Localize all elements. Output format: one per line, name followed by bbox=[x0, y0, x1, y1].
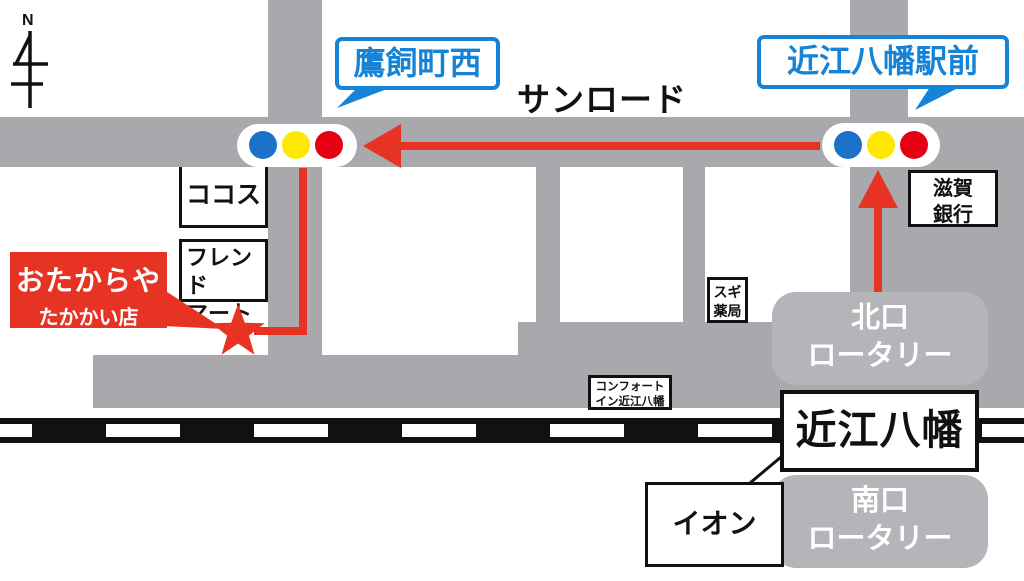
building-sugi-pharmacy: スギ 薬局 bbox=[707, 277, 748, 323]
north-exit-rotary: 北口 ロータリー bbox=[772, 292, 988, 385]
comfort-inn-line2: イン近江八幡 bbox=[591, 395, 669, 410]
road-side-street-1 bbox=[536, 167, 560, 327]
station-box: 近江八幡 bbox=[780, 390, 979, 472]
shiga-bank-line1: 滋賀 bbox=[911, 176, 995, 202]
road-side-street-2 bbox=[683, 167, 705, 325]
sugi-line2: 薬局 bbox=[710, 302, 745, 321]
sugi-line1: スギ bbox=[710, 283, 745, 302]
aeon-label: イオン bbox=[672, 508, 756, 539]
signal-west-label: 鷹飼町西 bbox=[353, 45, 481, 81]
building-friend-mart: フレンド マート bbox=[179, 239, 268, 302]
friend-mart-line1: フレンド bbox=[186, 244, 265, 300]
compass-n-label: N bbox=[22, 12, 34, 29]
yellow-light-icon bbox=[867, 131, 895, 159]
bubble-east-pointer bbox=[915, 87, 960, 110]
rotary-south-line2: ロータリー bbox=[772, 521, 988, 559]
comfort-inn-line1: コンフォート bbox=[591, 380, 669, 395]
blue-light-icon bbox=[249, 131, 277, 159]
rotary-north-line2: ロータリー bbox=[772, 338, 988, 376]
south-exit-rotary: 南口 ロータリー bbox=[772, 475, 988, 568]
traffic-light-east bbox=[822, 123, 940, 167]
red-light-icon bbox=[900, 131, 928, 159]
rotary-south-line1: 南口 bbox=[772, 483, 988, 521]
friend-mart-line2: マート bbox=[186, 300, 265, 328]
rotary-north-line1: 北口 bbox=[772, 300, 988, 338]
building-comfort-inn: コンフォート イン近江八幡 bbox=[588, 375, 672, 410]
store-name: おたからや bbox=[10, 259, 167, 299]
shiga-bank-line2: 銀行 bbox=[911, 202, 995, 228]
station-name: 近江八幡 bbox=[796, 407, 964, 453]
yellow-light-icon bbox=[282, 131, 310, 159]
street-name-label: サンロード bbox=[516, 73, 688, 121]
road-west-vertical bbox=[268, 0, 322, 357]
signal-bubble-west: 鷹飼町西 bbox=[335, 37, 500, 90]
building-cocos: ココス bbox=[179, 167, 268, 228]
building-shiga-bank: 滋賀 銀行 bbox=[908, 170, 998, 227]
store-callout: おたからや たかかい店 bbox=[10, 252, 167, 328]
traffic-light-west bbox=[237, 124, 357, 167]
red-light-icon bbox=[315, 131, 343, 159]
cocos-label: ココス bbox=[186, 181, 261, 209]
blue-light-icon bbox=[834, 131, 862, 159]
signal-east-label: 近江八幡駅前 bbox=[787, 43, 979, 79]
aeon-callout-line bbox=[750, 457, 781, 483]
compass-north-icon bbox=[11, 31, 48, 108]
bubble-west-pointer bbox=[337, 87, 392, 108]
building-aeon: イオン bbox=[645, 482, 784, 567]
store-branch: たかかい店 bbox=[10, 301, 167, 330]
access-map: 北口 ロータリー 南口 ロータリー ココス フレンド マート スギ 薬局 滋賀 … bbox=[0, 0, 1024, 581]
signal-bubble-east: 近江八幡駅前 bbox=[757, 35, 1009, 89]
